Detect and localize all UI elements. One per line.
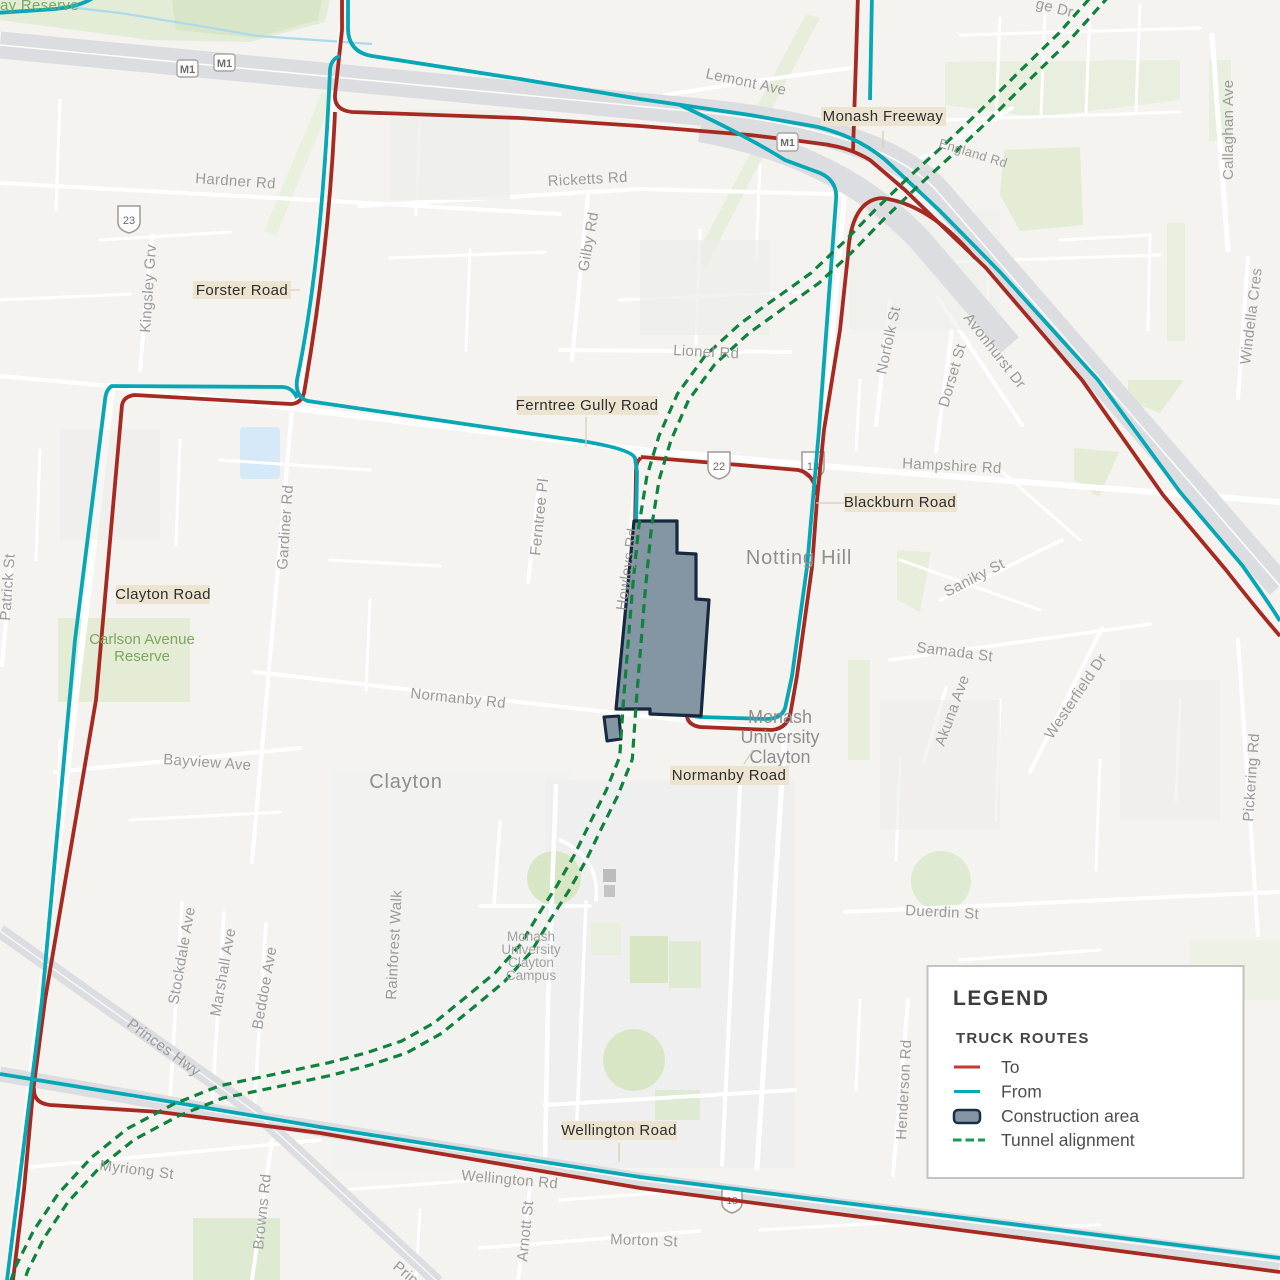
svg-text:Clayton Road: Clayton Road: [115, 586, 211, 603]
svg-text:Clayton: Clayton: [749, 747, 810, 767]
svg-text:Tunnel alignment: Tunnel alignment: [1001, 1130, 1135, 1150]
svg-text:Campus: Campus: [506, 968, 557, 983]
svg-text:M1: M1: [780, 137, 795, 149]
svg-text:M1: M1: [217, 58, 232, 70]
svg-text:Monash Freeway: Monash Freeway: [823, 108, 944, 125]
svg-text:From: From: [1001, 1082, 1042, 1102]
svg-text:Carlson Avenue: Carlson Avenue: [89, 631, 195, 648]
svg-text:Notting Hill: Notting Hill: [746, 547, 852, 569]
svg-text:University: University: [740, 727, 819, 747]
svg-text:LEGEND: LEGEND: [953, 987, 1050, 1010]
svg-text:To: To: [1001, 1057, 1019, 1077]
svg-text:Callaghan Ave: Callaghan Ave: [1220, 80, 1237, 180]
svg-text:Monash: Monash: [748, 707, 812, 727]
svg-text:Morton St: Morton St: [610, 1231, 679, 1250]
svg-text:Ferntree Gully Road: Ferntree Gully Road: [516, 397, 659, 414]
svg-text:Blackburn Road: Blackburn Road: [844, 494, 956, 511]
svg-text:23: 23: [123, 215, 135, 227]
svg-text:Reserve: Reserve: [114, 648, 170, 665]
svg-text:Construction area: Construction area: [1001, 1106, 1139, 1126]
svg-text:Lionel Rd: Lionel Rd: [673, 342, 740, 362]
svg-text:Normanby Road: Normanby Road: [672, 767, 786, 784]
svg-text:Wellington Road: Wellington Road: [561, 1122, 677, 1139]
svg-text:TRUCK ROUTES: TRUCK ROUTES: [956, 1030, 1090, 1047]
svg-text:M1: M1: [180, 64, 195, 76]
svg-text:Clayton: Clayton: [369, 771, 442, 793]
svg-text:Forster Road: Forster Road: [196, 282, 288, 299]
svg-text:22: 22: [713, 461, 725, 473]
svg-text:ay Reserve: ay Reserve: [0, 0, 79, 14]
